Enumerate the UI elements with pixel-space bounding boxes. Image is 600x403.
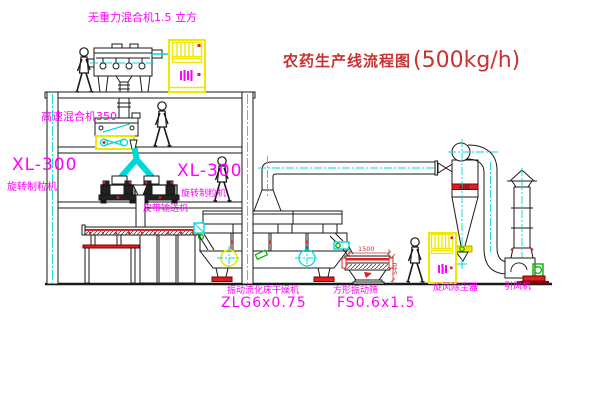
worker-figure-floor2 [154,102,172,146]
cyclone-cylinder [452,160,478,197]
title-text: 农药生产线流程图 [283,50,411,71]
sieve-length-dim: 1500 [358,245,375,253]
worker-figure-ground [407,238,425,282]
fan-base [523,276,545,281]
granulator-right-name-label: 旋转制粒机 [181,190,226,199]
mixer2-label: 高速混合机350 [41,111,117,122]
exhaust-duct-outer [262,162,437,190]
bin-1 [140,235,157,283]
granulator-left-name-label: 旋转制粒机 [7,183,57,193]
vibrating-sieve [342,249,395,284]
dryer-model-label: ZLG6x0.75 [221,296,307,310]
diagram-title: 农药生产线流程图 (500kg/h) [283,48,520,73]
dryer-foot-left [212,277,232,282]
cyclone-band-label: 400 [459,185,470,191]
belt-conveyor-label: 皮带输送机 [143,205,188,214]
fan-housing [505,258,535,278]
mixer2-feed-pipe [119,98,129,118]
mixer1-discharge [120,82,128,92]
floor2-slab [56,147,246,153]
exhaust-duct-inner [273,174,437,190]
sieve-model-label: FS0.6x1.5 [337,296,416,310]
riser-funnel [254,190,281,211]
dryer-foot-right [314,277,334,282]
bin-2 [159,235,176,283]
roof-slab [45,92,255,98]
bucket-elevator-1 [169,40,205,92]
gravity-free-mixer [88,44,169,92]
worker-figure-roof [76,48,94,92]
granulator-left-model-label: XL-300 [12,157,77,174]
dryer-body [200,233,347,251]
fan-label: 引风机 [504,283,531,292]
mixer1-leg-left [98,76,108,92]
dryer-hood [203,211,342,224]
induced-draft-fan [505,258,549,284]
flow-diagram-canvas: 1500 540 400 无重力混合机1.5 立方 农药生产线流程图 (500k… [0,0,600,403]
granulator-right-model-label: XL-300 [177,163,242,180]
title-capacity: (500kg/h) [413,48,520,73]
bucket-elevator-2 [429,233,456,283]
sieve-height-dim: 540 [391,263,399,275]
granulator-right [141,181,179,203]
mixer1-leg-right [140,76,150,92]
mixer1-label: 无重力混合机1.5 立方 [88,12,197,23]
cyclone-label: 旋风除尘器 [433,284,478,293]
belt-conveyor [82,223,214,283]
bin-3 [178,235,195,283]
